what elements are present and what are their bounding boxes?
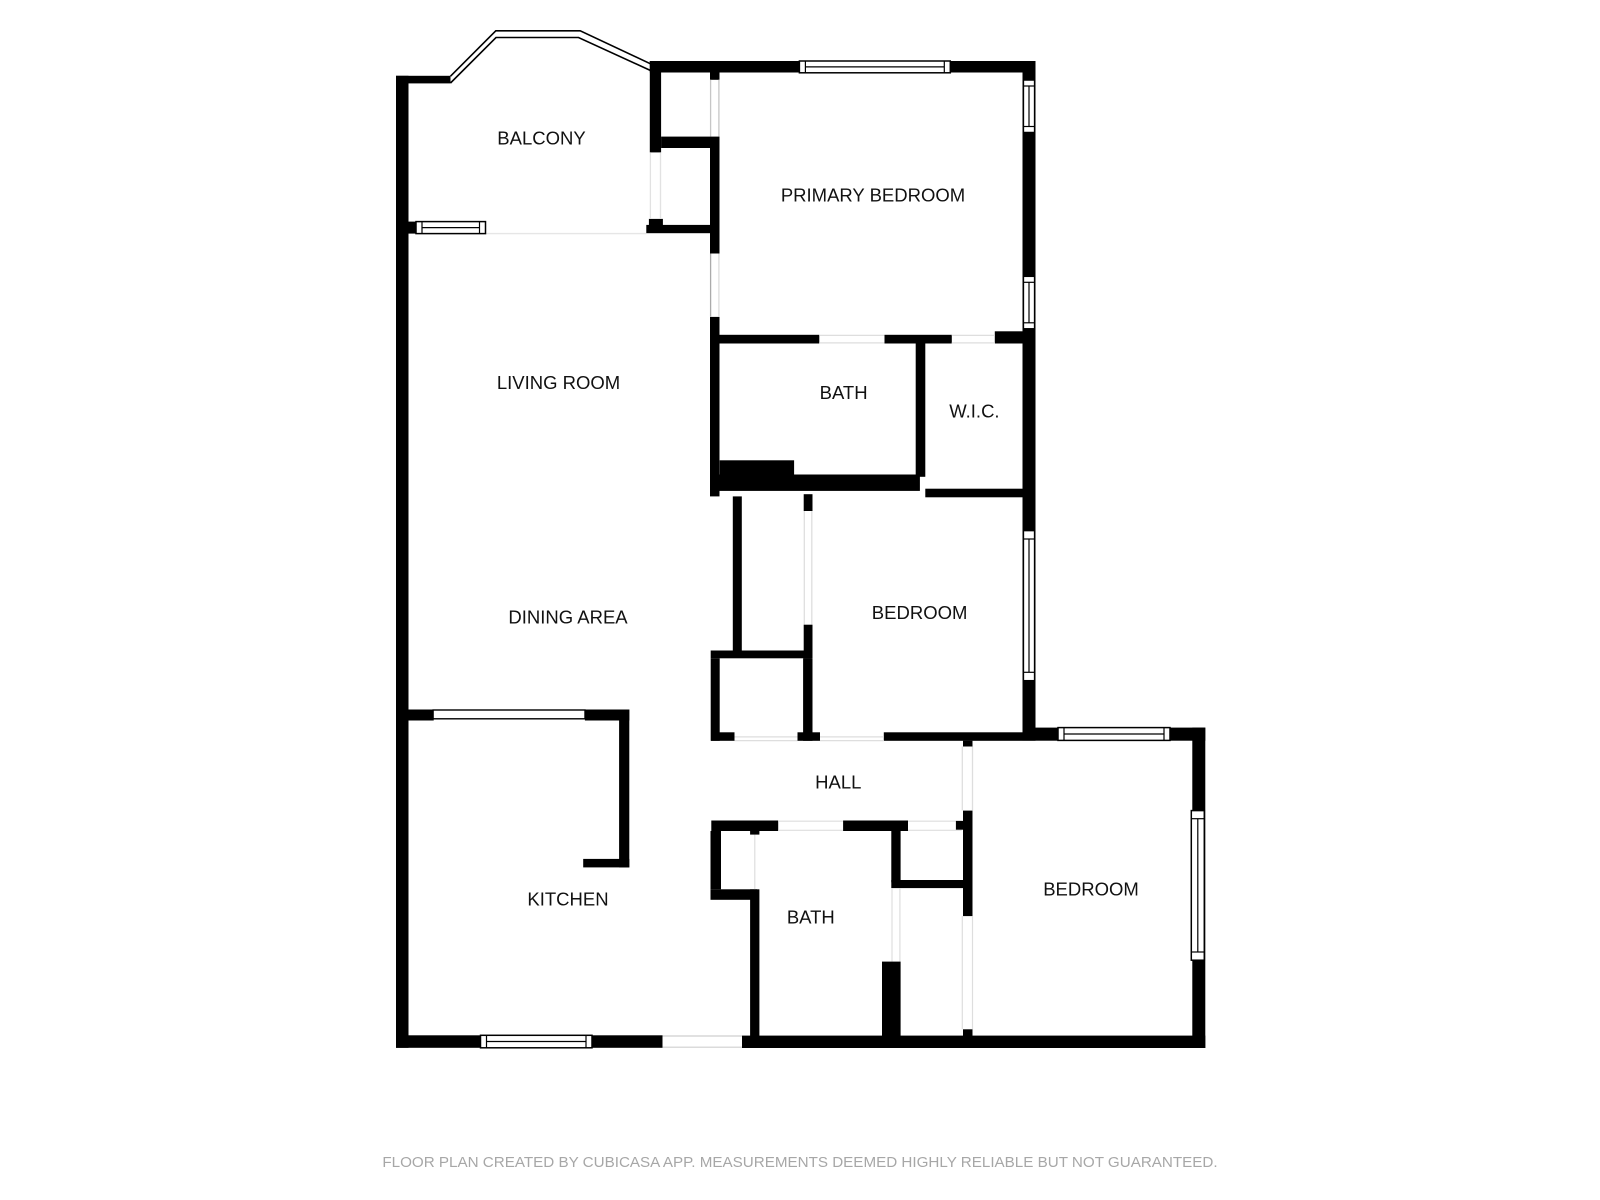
svg-text:BEDROOM: BEDROOM (872, 602, 968, 623)
svg-text:BALCONY: BALCONY (497, 128, 585, 149)
svg-text:BATH: BATH (820, 382, 868, 403)
svg-text:LIVING ROOM: LIVING ROOM (497, 372, 620, 393)
svg-text:BEDROOM: BEDROOM (1043, 879, 1139, 900)
svg-text:FLOOR PLAN CREATED BY CUBICASA: FLOOR PLAN CREATED BY CUBICASA APP. MEAS… (382, 1154, 1217, 1171)
svg-text:KITCHEN: KITCHEN (527, 888, 608, 909)
svg-text:PRIMARY BEDROOM: PRIMARY BEDROOM (781, 185, 965, 206)
svg-text:HALL: HALL (815, 771, 861, 792)
svg-text:W.I.C.: W.I.C. (949, 401, 999, 422)
svg-text:DINING AREA: DINING AREA (508, 607, 628, 628)
svg-text:BATH: BATH (787, 907, 835, 928)
